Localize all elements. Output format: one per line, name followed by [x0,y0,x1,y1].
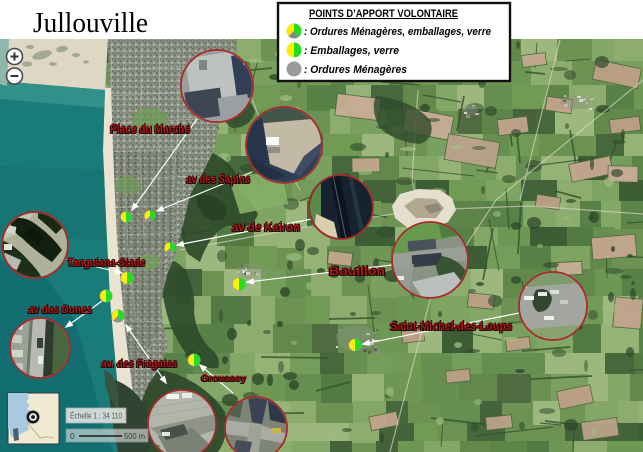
svg-text:: Ordures Ménagères, emballage: : Ordures Ménagères, emballages, verre [304,26,491,38]
svg-text:av. des Frégates: av. des Frégates [101,358,177,370]
svg-text:Échelle 1 : 34 110: Échelle 1 : 34 110 [70,412,122,421]
svg-text:Place du Marché: Place du Marché [110,124,190,136]
svg-text:: Emballages, verre: : Emballages, verre [304,45,399,57]
svg-text:500 m: 500 m [124,431,145,441]
svg-text:av des Sapins: av des Sapins [186,174,250,186]
svg-text:Jullouville: Jullouville [33,8,148,39]
svg-text:Saint-Michel-des-Loups: Saint-Michel-des-Loups [390,321,512,333]
svg-text:Bouillon: Bouillon [329,266,385,278]
svg-text:: Ordures Ménagères: : Ordures Ménagères [304,64,407,76]
svg-text:POINTS D’APPORT VOLONTAIRE: POINTS D’APPORT VOLONTAIRE [309,8,458,20]
svg-text:Tanguiana-Stade: Tanguiana-Stade [67,257,145,269]
svg-text:Groussey: Groussey [201,372,246,384]
svg-text:av des Dunes: av des Dunes [28,304,92,316]
svg-text:0: 0 [70,431,75,441]
svg-text:av de Kairon: av de Kairon [232,222,300,234]
